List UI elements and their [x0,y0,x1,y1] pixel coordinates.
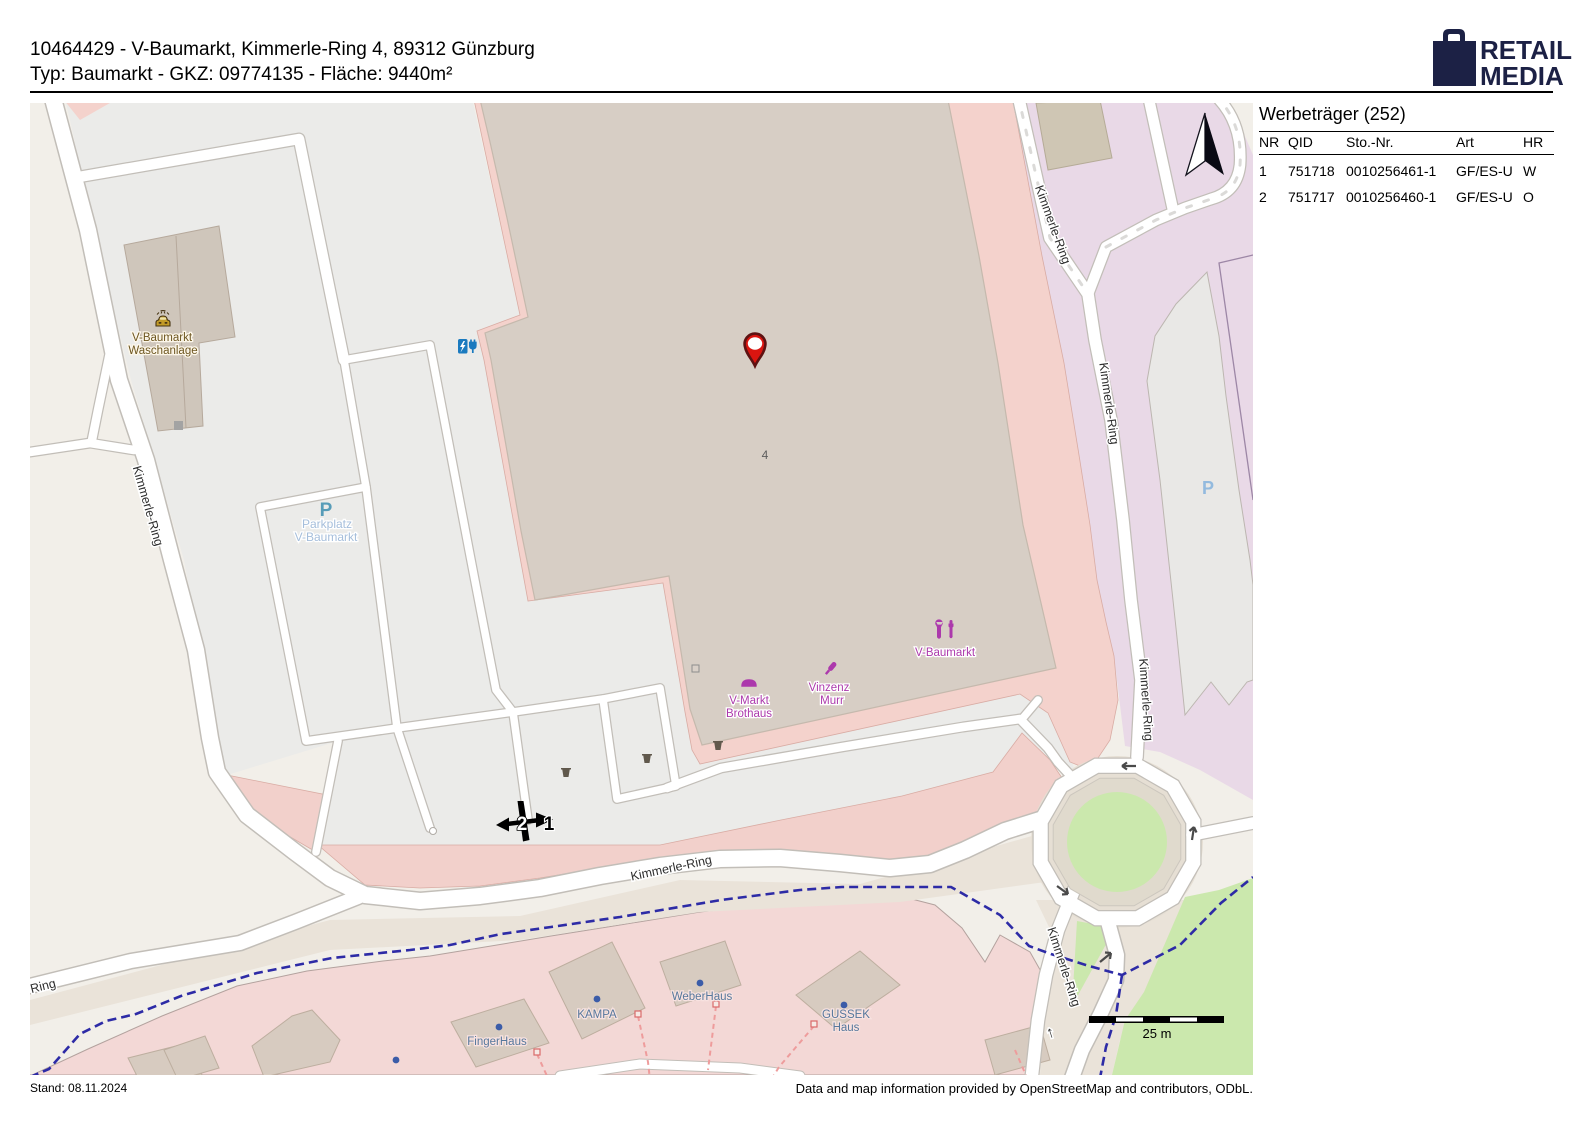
svg-text:GUSSEK: GUSSEK [822,1009,870,1021]
svg-text:KAMPA: KAMPA [577,1009,617,1021]
svg-text:4: 4 [762,448,769,462]
svg-text:V-Baumarkt: V-Baumarkt [295,530,358,544]
svg-text:Haus: Haus [833,1022,860,1034]
svg-text:Vinzenz: Vinzenz [809,682,850,694]
svg-text:1: 1 [544,814,555,835]
svg-text:FingerHaus: FingerHaus [467,1036,527,1048]
svg-text:2: 2 [517,814,528,835]
svg-text:P: P [1202,478,1214,498]
svg-text:Waschanlage: Waschanlage [128,345,197,357]
svg-text:V-Baumarkt: V-Baumarkt [915,647,976,659]
svg-text:V-Baumarkt: V-Baumarkt [132,332,193,344]
svg-text:WeberHaus: WeberHaus [672,991,733,1003]
svg-text:Murr: Murr [820,695,844,707]
svg-text:V-Markt: V-Markt [729,695,769,707]
svg-text:Parkplatz: Parkplatz [302,517,352,531]
svg-text:25 m: 25 m [1143,1026,1172,1041]
svg-text:Brothaus: Brothaus [726,708,772,720]
